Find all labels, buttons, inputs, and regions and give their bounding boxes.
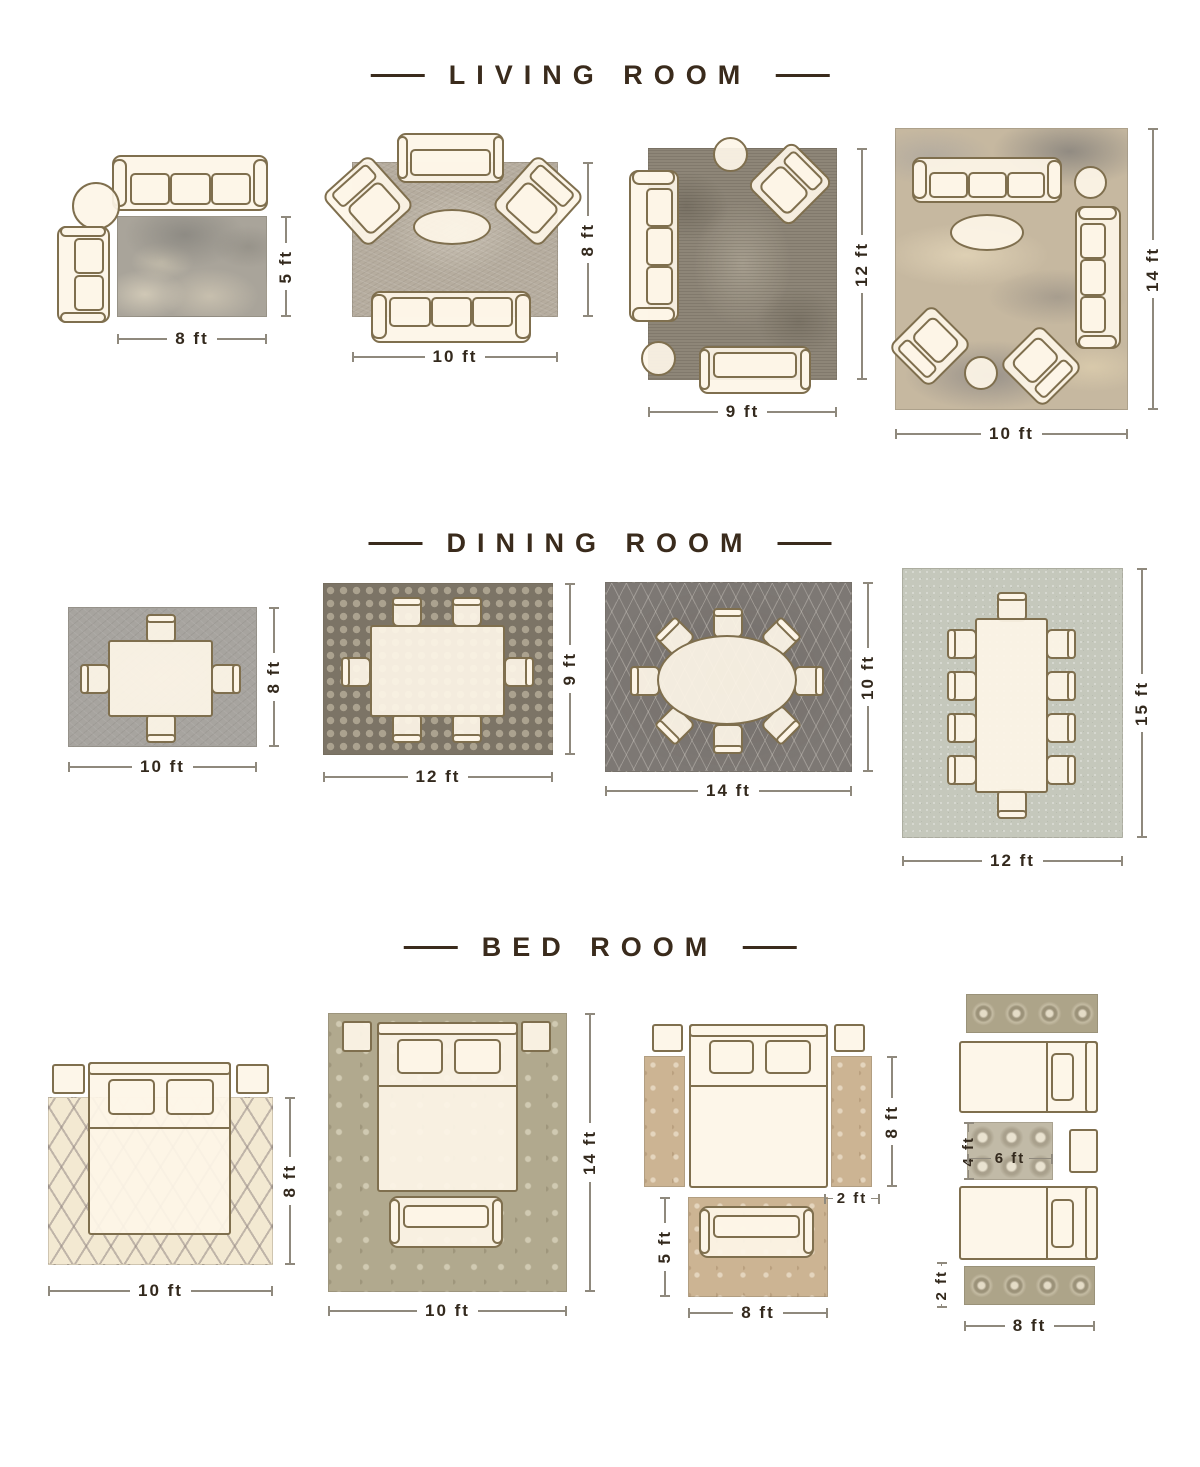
sofa-cushion [1080, 223, 1105, 260]
dimension-label: 2 ft [933, 1266, 950, 1305]
dim-tick [887, 1185, 897, 1187]
bedside-runner-rug [831, 1056, 872, 1187]
pillow [1051, 1199, 1074, 1248]
dim-line [783, 1312, 826, 1314]
dim-tick [556, 352, 558, 362]
runner-width-dimension: 2 ft [824, 1190, 880, 1207]
dim-line [478, 1310, 565, 1312]
sofa-cushion [389, 297, 430, 327]
dining-table [657, 635, 797, 725]
dining-chair [341, 657, 371, 687]
dim-line [904, 860, 982, 862]
center-rug-width-dimension: 6 ft [967, 1150, 1053, 1167]
bedside-runner-rug [644, 1056, 685, 1187]
dim-line [587, 263, 589, 315]
dim-tick [265, 334, 267, 344]
width-dimension: 10 ft [895, 424, 1128, 444]
side-table [713, 137, 748, 172]
dim-line [1029, 1158, 1051, 1160]
nightstand [236, 1064, 269, 1094]
dim-line [217, 338, 265, 340]
dimension-label: 14 ft [1143, 240, 1163, 299]
dim-line [867, 706, 869, 770]
section-title-bed-room: BED ROOM [404, 932, 797, 963]
dining-chair [504, 657, 534, 687]
dim-tick [551, 772, 553, 782]
width-dimension: 12 ft [902, 851, 1123, 871]
dim-line [285, 290, 287, 315]
pillow [108, 1079, 155, 1114]
sofa-cushion [646, 227, 674, 266]
dim-line [968, 1124, 970, 1132]
dim-tick [878, 1194, 880, 1204]
dim-line [325, 776, 408, 778]
twin-bed [959, 1186, 1098, 1260]
sofa-cushion [74, 275, 104, 310]
bed [88, 1062, 231, 1235]
dim-tick [565, 753, 575, 755]
twin-bed [959, 1041, 1098, 1113]
dining-chair [146, 713, 176, 743]
sofa-cushion [1080, 296, 1105, 333]
dim-line [354, 356, 425, 358]
sofa-cushion [646, 188, 674, 227]
bench [389, 1196, 503, 1248]
dimension-label: 8 ft [733, 1303, 783, 1323]
section-title-text: LIVING ROOM [449, 60, 752, 91]
dim-line [861, 150, 863, 235]
height-dimension: 15 ft [1132, 568, 1152, 838]
loveseat [699, 346, 811, 394]
section-title-text: BED ROOM [482, 932, 719, 963]
sofa-cushion [472, 297, 513, 327]
height-dimension: 10 ft [858, 582, 878, 772]
dimension-label: 15 ft [1132, 674, 1152, 733]
dim-tick [565, 1306, 567, 1316]
dimension-label: 9 ft [718, 402, 768, 422]
sofa-cushion [929, 172, 968, 198]
dining-chair [947, 671, 977, 701]
dim-tick [281, 315, 291, 317]
dining-chair [1046, 671, 1076, 701]
sofa-cushion [410, 149, 490, 177]
dim-line [767, 411, 835, 413]
dim-tick [255, 762, 257, 772]
sofa-cushion [1007, 172, 1046, 198]
height-dimension: 14 ft [580, 1013, 600, 1292]
dim-line [897, 433, 981, 435]
dimension-label: 14 ft [698, 781, 759, 801]
sofa-cushion [713, 352, 797, 378]
dim-line [1042, 433, 1126, 435]
dining-chair [452, 597, 482, 627]
dim-line [273, 701, 275, 745]
dining-chair [392, 597, 422, 627]
bed [377, 1022, 518, 1192]
sofa-cushion [646, 266, 674, 305]
dim-line [587, 164, 589, 216]
dim-tick [1137, 836, 1147, 838]
height-dimension: 8 ft [264, 607, 284, 747]
coffee-table [950, 214, 1024, 251]
height-dimension: 8 ft [280, 1097, 300, 1265]
nightstand [652, 1024, 683, 1052]
nightstand [342, 1021, 372, 1052]
dim-tick [937, 1306, 947, 1308]
width-dimension: 9 ft [648, 402, 837, 422]
dim-tick [585, 1290, 595, 1292]
dining-chair [947, 755, 977, 785]
pillow [709, 1040, 755, 1074]
dining-chair [997, 789, 1027, 819]
dim-line [650, 411, 718, 413]
title-dash [371, 74, 425, 77]
dim-line [1152, 130, 1154, 240]
dim-line [867, 584, 869, 648]
runner-height-dimension: 2 ft [933, 1262, 950, 1308]
dim-tick [285, 1263, 295, 1265]
dimension-label: 8 ft [1005, 1316, 1055, 1336]
rug-size-guide: LIVING ROOM 8 ft 5 ft [0, 0, 1200, 1467]
dining-chair [947, 629, 977, 659]
dimension-label: 8 ft [167, 329, 217, 349]
dim-tick [1126, 429, 1128, 439]
dim-line [330, 1310, 417, 1312]
dim-line [569, 693, 571, 753]
foot-rug-width-dimension: 8 ft [688, 1303, 828, 1323]
height-dimension: 14 ft [1143, 128, 1163, 410]
width-dimension: 14 ft [605, 781, 852, 801]
sofa-cushion [1080, 259, 1105, 296]
dim-line [589, 1182, 591, 1290]
dim-line [191, 1290, 271, 1292]
dimension-label: 10 ft [132, 757, 193, 777]
dim-line [968, 1170, 970, 1178]
dimension-label: 5 ft [655, 1223, 675, 1271]
runner-rug [964, 1266, 1095, 1305]
sofa [629, 170, 679, 322]
dimension-label: 5 ft [276, 243, 296, 291]
dim-tick [660, 1295, 670, 1297]
sofa-cushion [431, 297, 472, 327]
width-dimension: 10 ft [68, 757, 257, 777]
dimension-label: 8 ft [264, 653, 284, 701]
dim-line [50, 1290, 130, 1292]
dim-line [1141, 570, 1143, 674]
dim-line [1043, 860, 1121, 862]
dim-line [664, 1271, 666, 1295]
bed [689, 1024, 828, 1188]
dimension-label: 12 ft [408, 767, 469, 787]
section-title-dining-room: DINING ROOM [369, 528, 832, 559]
width-dimension: 10 ft [352, 347, 558, 367]
dim-tick [850, 786, 852, 796]
dim-line [826, 1198, 833, 1200]
dimension-label: 12 ft [982, 851, 1043, 871]
dim-tick [583, 315, 593, 317]
dimension-label: 10 ft [981, 424, 1042, 444]
dim-line [759, 790, 850, 792]
dimension-label: 8 ft [280, 1157, 300, 1205]
dimension-label: 6 ft [991, 1150, 1030, 1167]
sofa-cushion [130, 173, 170, 205]
width-dimension: 10 ft [328, 1301, 567, 1321]
sofa [112, 155, 268, 211]
sofa-cushion [74, 238, 104, 273]
dining-chair [80, 664, 110, 694]
dim-line [589, 1015, 591, 1123]
dimension-label: 9 ft [560, 645, 580, 693]
loveseat [397, 133, 504, 183]
section-title-text: DINING ROOM [447, 528, 754, 559]
living-rug-8x5 [117, 216, 267, 317]
dim-line [119, 338, 167, 340]
ottoman [641, 341, 676, 376]
dimension-label: 10 ft [417, 1301, 478, 1321]
dim-tick [269, 745, 279, 747]
dim-tick [271, 1286, 273, 1296]
bench-cushion [403, 1205, 489, 1228]
dim-line [289, 1205, 291, 1263]
section-title-living-room: LIVING ROOM [371, 60, 830, 91]
dimension-label: 8 ft [578, 216, 598, 264]
dimension-label: 10 ft [130, 1281, 191, 1301]
dim-tick [857, 378, 867, 380]
runner-height-dimension: 8 ft [882, 1056, 902, 1187]
dimension-label: 12 ft [852, 235, 872, 294]
title-dash [369, 542, 423, 545]
dim-line [70, 766, 132, 768]
dining-chair [392, 713, 422, 743]
dim-line [1141, 732, 1143, 836]
runner-rug [966, 994, 1098, 1033]
side-table [72, 182, 120, 230]
dining-chair [630, 666, 660, 696]
dim-line [1054, 1325, 1093, 1327]
height-dimension: 12 ft [852, 148, 872, 380]
title-dash [778, 542, 832, 545]
dining-chair [452, 713, 482, 743]
sofa [371, 291, 531, 343]
dim-line [485, 356, 556, 358]
dim-line [468, 776, 551, 778]
dim-tick [863, 770, 873, 772]
dimension-label: 2 ft [833, 1190, 872, 1207]
dining-chair [947, 713, 977, 743]
dim-line [966, 1325, 1005, 1327]
foot-rug-height-dimension: 5 ft [655, 1197, 675, 1297]
dim-line [607, 790, 698, 792]
sofa-cushion [968, 172, 1007, 198]
nightstand [521, 1021, 551, 1052]
nightstand [52, 1064, 85, 1094]
dim-line [690, 1312, 733, 1314]
dim-tick [835, 407, 837, 417]
dim-line [193, 766, 255, 768]
sofa [912, 157, 1062, 203]
dim-line [285, 218, 287, 243]
width-dimension: 8 ft [117, 329, 267, 349]
sofa-cushion [211, 173, 251, 205]
pillow [454, 1039, 501, 1074]
ottoman [964, 356, 998, 390]
dining-chair [794, 666, 824, 696]
nightstand [834, 1024, 865, 1052]
height-dimension: 5 ft [276, 216, 296, 317]
dim-line [871, 1198, 878, 1200]
dining-chair [713, 724, 743, 754]
dining-chair [713, 608, 743, 638]
dining-table [975, 618, 1048, 793]
dining-table [108, 640, 213, 717]
dim-tick [1121, 856, 1123, 866]
dim-line [1152, 298, 1154, 408]
coffee-table [413, 209, 491, 245]
pillow [765, 1040, 811, 1074]
dim-line [891, 1145, 893, 1185]
sofa-cushion [170, 173, 210, 205]
dim-line [289, 1099, 291, 1157]
bench [699, 1206, 814, 1258]
dining-chair [1046, 629, 1076, 659]
loveseat [57, 226, 110, 323]
dim-tick [1051, 1154, 1053, 1164]
side-table [1074, 166, 1107, 199]
dining-chair [1046, 755, 1076, 785]
dim-line [969, 1158, 991, 1160]
bench-cushion [713, 1215, 800, 1238]
title-dash [775, 74, 829, 77]
dining-chair [1046, 713, 1076, 743]
pillow [166, 1079, 213, 1114]
dimension-label: 14 ft [580, 1123, 600, 1182]
width-dimension: 12 ft [323, 767, 553, 787]
dim-line [569, 585, 571, 645]
runner-width-dimension: 8 ft [964, 1316, 1095, 1336]
dim-tick [964, 1178, 974, 1180]
dim-line [273, 609, 275, 653]
dim-tick [826, 1308, 828, 1318]
dimension-label: 8 ft [882, 1098, 902, 1146]
dim-line [664, 1199, 666, 1223]
dining-table [370, 625, 505, 717]
dim-tick [1093, 1321, 1095, 1331]
width-dimension: 10 ft [48, 1281, 273, 1301]
dim-tick [1148, 408, 1158, 410]
dimension-label: 10 ft [425, 347, 486, 367]
nightstand [1069, 1129, 1098, 1173]
dim-line [861, 293, 863, 378]
pillow [1051, 1053, 1074, 1101]
height-dimension: 8 ft [578, 162, 598, 317]
sofa [1075, 206, 1121, 349]
pillow [397, 1039, 444, 1074]
dim-line [891, 1058, 893, 1098]
height-dimension: 9 ft [560, 583, 580, 755]
title-dash [742, 946, 796, 949]
dimension-label: 10 ft [858, 648, 878, 707]
dining-chair [211, 664, 241, 694]
title-dash [404, 946, 458, 949]
